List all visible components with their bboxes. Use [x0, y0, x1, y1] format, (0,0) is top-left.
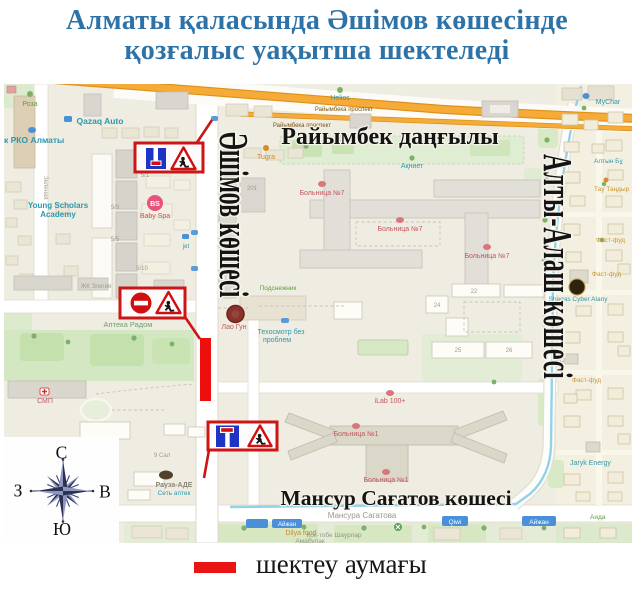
svg-text:Jaryk Energy: Jaryk Energy: [570, 460, 611, 467]
svg-text:5/1: 5/1: [141, 173, 150, 179]
svg-text:Больница №7: Больница №7: [377, 226, 422, 233]
svg-text:MyChar: MyChar: [596, 99, 621, 106]
svg-text:5/3: 5/3: [111, 205, 120, 211]
svg-text:9 Сал: 9 Сал: [154, 453, 171, 459]
svg-text:Фаст-фуд: Фаст-фуд: [592, 271, 621, 278]
svg-text:В: В: [99, 482, 111, 502]
svg-text:Алты-Алаш көшесі: Алты-Алаш көшесі: [534, 154, 579, 379]
svg-text:22: 22: [471, 289, 478, 295]
svg-text:Техосмотр без: Техосмотр без: [258, 328, 305, 336]
svg-text:Аптека Радом: Аптека Радом: [104, 320, 153, 329]
svg-text:Рауза-АДЕ: Рауза-АДЕ: [156, 482, 193, 489]
svg-text:Тау Таңдыр: Тау Таңдыр: [594, 186, 630, 193]
svg-text:24: 24: [434, 303, 441, 309]
svg-text:ЖК Элегия: ЖК Элегия: [81, 284, 111, 290]
svg-text:Больница №7: Больница №7: [464, 253, 509, 260]
svg-text:Әшімов көшесі: Әшімов көшесі: [210, 132, 255, 297]
svg-text:Больница №1: Больница №1: [363, 477, 408, 484]
svg-text:Helios: Helios: [330, 95, 350, 102]
svg-text:Зеленая: Зеленая: [42, 176, 48, 200]
svg-text:Сеть аптек: Сеть аптек: [158, 490, 191, 497]
svg-text:iLab 100+: iLab 100+: [375, 398, 406, 405]
svg-text:Больница №7: Больница №7: [299, 190, 344, 197]
svg-text:Qiwi: Qiwi: [449, 519, 462, 526]
svg-text:Райымбек даңғылы: Райымбек даңғылы: [281, 124, 499, 150]
svg-text:5/10: 5/10: [136, 266, 148, 272]
svg-text:Больница №1: Больница №1: [333, 431, 378, 438]
svg-text:Young Scholars: Young Scholars: [28, 201, 89, 210]
svg-text:Мансура Сагатова: Мансура Сагатова: [328, 511, 397, 520]
svg-text:Алтын Бұ: Алтын Бұ: [594, 158, 623, 165]
svg-text:jet: jet: [182, 244, 190, 250]
svg-text:Айжан: Айжан: [278, 521, 296, 528]
svg-text:BS: BS: [150, 201, 160, 208]
svg-text:Райымбека проспект: Райымбека проспект: [315, 106, 374, 113]
svg-text:Qazaq Auto: Qazaq Auto: [77, 116, 124, 126]
svg-text:проблем: проблем: [263, 336, 291, 344]
svg-text:Tugra: Tugra: [257, 154, 275, 161]
svg-text:Academy: Academy: [40, 210, 76, 219]
svg-text:5/5: 5/5: [111, 237, 120, 243]
svg-text:Ақниет: Ақниет: [401, 163, 424, 170]
svg-text:25: 25: [455, 348, 462, 354]
svg-text:Подснежник: Подснежник: [260, 285, 297, 292]
svg-text:Лао Гун: Лао Гун: [221, 324, 246, 331]
svg-text:Амабулак: Амабулак: [295, 537, 325, 543]
svg-text:Фаст-фуд: Фаст-фуд: [596, 237, 625, 244]
svg-text:Айжан: Айжан: [529, 518, 549, 526]
svg-text:З: З: [14, 481, 23, 501]
svg-text:к РКО Алматы: к РКО Алматы: [4, 135, 64, 145]
svg-text:С: С: [56, 443, 68, 463]
svg-text:Мансур Сағатов көшесі: Мансур Сағатов көшесі: [280, 486, 511, 510]
svg-text:Аида: Аида: [590, 514, 606, 521]
svg-text:Ю: Ю: [53, 519, 71, 539]
svg-text:Baby Spa: Baby Spa: [140, 213, 170, 220]
svg-text:26: 26: [506, 348, 513, 354]
svg-text:Роза: Роза: [22, 101, 37, 108]
svg-text:СМП: СМП: [37, 398, 53, 405]
